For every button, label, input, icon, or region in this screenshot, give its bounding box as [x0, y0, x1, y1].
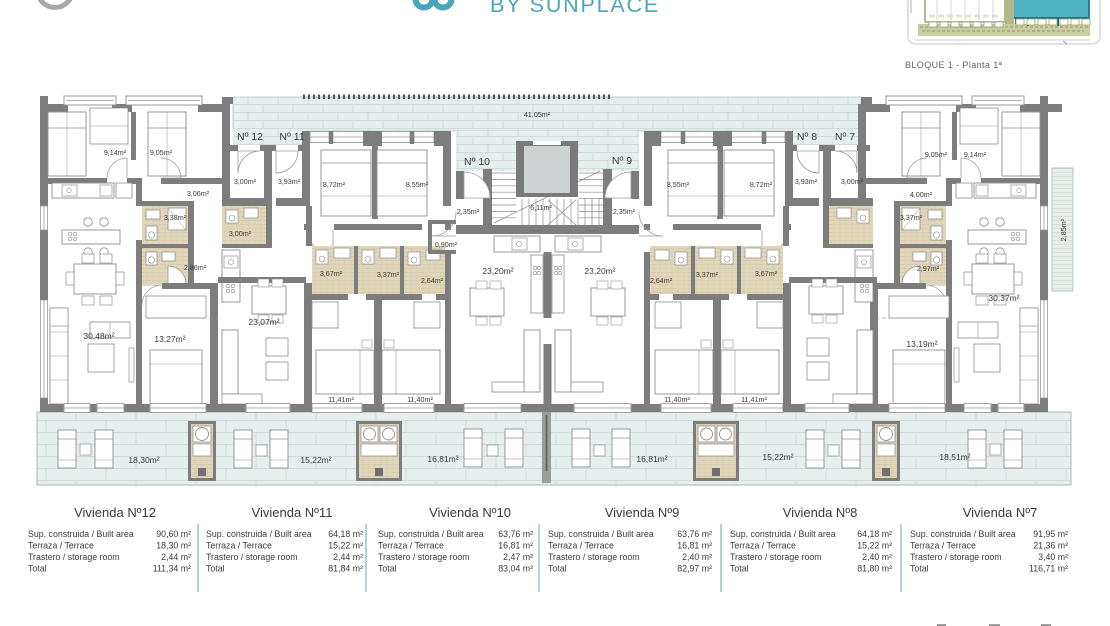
svg-text:23,20m²: 23,20m²	[482, 266, 513, 276]
svg-text:Nº 9: Nº 9	[612, 155, 632, 167]
svg-text:3,37m²: 3,37m²	[377, 270, 400, 279]
svg-text:Total: Total	[910, 564, 929, 574]
svg-text:64,18 m²: 64,18 m²	[328, 529, 363, 539]
svg-text:2,64m²: 2,64m²	[650, 276, 673, 285]
svg-text:Sup. construida / Built area: Sup. construida / Built area	[730, 529, 836, 539]
svg-text:8,72m²: 8,72m²	[323, 180, 346, 189]
svg-text:Total: Total	[730, 564, 749, 574]
svg-text:111,34 m²: 111,34 m²	[153, 564, 191, 574]
svg-text:30,48m²: 30,48m²	[83, 331, 114, 341]
svg-text:3,67m²: 3,67m²	[320, 269, 343, 278]
svg-text:6,11m²: 6,11m²	[530, 203, 552, 212]
svg-text:21,36 m²: 21,36 m²	[1033, 541, 1068, 551]
svg-text:Sup. construida / Built area: Sup. construida / Built area	[28, 529, 134, 539]
svg-text:23,07m²: 23,07m²	[248, 317, 279, 327]
svg-text:63,76 m²: 63,76 m²	[677, 529, 712, 539]
svg-text:8,55m²: 8,55m²	[406, 180, 429, 189]
svg-text:15,22m²: 15,22m²	[300, 455, 331, 465]
svg-text:2,35m²: 2,35m²	[457, 207, 480, 216]
svg-text:2,44 m²: 2,44 m²	[161, 552, 191, 562]
svg-text:Sup. construida / Built area: Sup. construida / Built area	[548, 529, 654, 539]
svg-text:3,00m²: 3,00m²	[234, 177, 257, 186]
svg-text:83,04 m²: 83,04 m²	[498, 564, 533, 574]
svg-text:Trastero / storage room: Trastero / storage room	[910, 552, 1002, 562]
svg-text:3,67m²: 3,67m²	[755, 269, 778, 278]
svg-text:Vivienda Nº12: Vivienda Nº12	[74, 505, 156, 520]
svg-text:4,00m²: 4,00m²	[910, 190, 933, 199]
svg-text:BLOQUE 1 - Planta 1ª: BLOQUE 1 - Planta 1ª	[905, 60, 1003, 70]
svg-text:0,90m²: 0,90m²	[435, 240, 458, 249]
svg-text:Total: Total	[206, 564, 225, 574]
svg-text:Sup. construida / Built area: Sup. construida / Built area	[378, 529, 484, 539]
svg-text:Terraza / Terrace: Terraza / Terrace	[378, 541, 444, 551]
svg-text:116,71 m²: 116,71 m²	[1029, 564, 1068, 574]
svg-text:63,76 m²: 63,76 m²	[498, 529, 533, 539]
svg-text:64,18 m²: 64,18 m²	[857, 529, 892, 539]
svg-text:Total: Total	[378, 564, 397, 574]
svg-text:Vivienda Nº11: Vivienda Nº11	[252, 505, 333, 520]
svg-text:Terraza / Terrace: Terraza / Terrace	[910, 541, 976, 551]
svg-text:Nº 8: Nº 8	[797, 131, 817, 143]
svg-text:. .. ...: . .. ...	[954, 38, 963, 43]
svg-text:2,97m²: 2,97m²	[917, 264, 940, 273]
svg-text:3,40 m²: 3,40 m²	[1038, 552, 1068, 562]
svg-text:81,84 m²: 81,84 m²	[328, 564, 363, 574]
svg-text:8,55m²: 8,55m²	[667, 180, 690, 189]
svg-text:3,00m²: 3,00m²	[229, 229, 252, 238]
svg-text:3,38m²: 3,38m²	[164, 213, 187, 222]
svg-text:Nº 7: Nº 7	[835, 131, 855, 143]
svg-text:Terraza / Terrace: Terraza / Terrace	[548, 541, 614, 551]
svg-text:2,35m²: 2,35m²	[613, 207, 636, 216]
svg-text:30,37m²: 30,37m²	[988, 293, 1019, 303]
svg-text:11,40m²: 11,40m²	[407, 395, 433, 404]
svg-text:13,19m²: 13,19m²	[906, 339, 937, 349]
svg-text:Trastero / storage room: Trastero / storage room	[28, 552, 120, 562]
svg-text:15,22 m²: 15,22 m²	[857, 541, 892, 551]
svg-text:90,60 m²: 90,60 m²	[156, 529, 191, 539]
svg-text:BY SUNPLACE: BY SUNPLACE	[490, 0, 660, 17]
svg-text:3,93m²: 3,93m²	[795, 177, 818, 186]
svg-text:2,40 m²: 2,40 m²	[682, 552, 712, 562]
svg-text:11,40m²: 11,40m²	[664, 395, 690, 404]
svg-text:82,97 m²: 82,97 m²	[677, 564, 712, 574]
svg-text:2,44 m²: 2,44 m²	[333, 552, 363, 562]
svg-text:41,05m²: 41,05m²	[524, 110, 551, 119]
svg-text:Nº 11: Nº 11	[279, 131, 304, 143]
svg-text:8,72m²: 8,72m²	[750, 180, 773, 189]
svg-text:3,37m²: 3,37m²	[696, 270, 719, 279]
svg-text:9,05m²: 9,05m²	[150, 148, 173, 157]
svg-text:18,30m²: 18,30m²	[128, 455, 159, 465]
svg-text:Nº 10: Nº 10	[464, 156, 490, 168]
svg-text:18,30 m²: 18,30 m²	[156, 541, 191, 551]
svg-text:16,81m²: 16,81m²	[427, 454, 458, 464]
svg-text:2,47 m²: 2,47 m²	[503, 552, 533, 562]
svg-text:Total: Total	[548, 564, 567, 574]
svg-text:9,14m²: 9,14m²	[104, 148, 127, 157]
svg-text:Sup. construida / Built area: Sup. construida / Built area	[910, 529, 1016, 539]
svg-text:Terraza / Terrace: Terraza / Terrace	[28, 541, 94, 551]
svg-text:Trastero / storage room: Trastero / storage room	[548, 552, 640, 562]
svg-text:Sup. construida / Built area: Sup. construida / Built area	[206, 529, 312, 539]
svg-text:2,85m²: 2,85m²	[1059, 218, 1068, 241]
svg-text:Trastero / storage room: Trastero / storage room	[378, 552, 470, 562]
svg-text:Trastero / storage room: Trastero / storage room	[730, 552, 822, 562]
svg-text:Vivienda Nº7: Vivienda Nº7	[963, 505, 1038, 520]
svg-text:3,00m²: 3,00m²	[841, 177, 864, 186]
svg-text:18,51m²: 18,51m²	[939, 452, 970, 462]
svg-text:Nº 12: Nº 12	[237, 131, 263, 143]
svg-text:15,22 m²: 15,22 m²	[328, 541, 363, 551]
svg-text:81,80 m²: 81,80 m²	[857, 564, 892, 574]
svg-text:9,14m²: 9,14m²	[964, 150, 987, 159]
svg-text:Terraza / Terrace: Terraza / Terrace	[206, 541, 272, 551]
svg-text:2,64m²: 2,64m²	[421, 276, 444, 285]
svg-text:16,81 m²: 16,81 m²	[677, 541, 712, 551]
svg-text:2,40 m²: 2,40 m²	[862, 552, 892, 562]
svg-text:Total: Total	[28, 564, 47, 574]
svg-text:23,20m²: 23,20m²	[584, 266, 615, 276]
svg-text:3,37m²: 3,37m²	[900, 213, 923, 222]
svg-text:Vivienda Nº8: Vivienda Nº8	[783, 505, 858, 520]
svg-text:15,22m²: 15,22m²	[762, 452, 793, 462]
svg-text:3,93m²: 3,93m²	[278, 177, 301, 186]
svg-text:Vivienda Nº10: Vivienda Nº10	[429, 505, 511, 520]
svg-text:Vivienda Nº9: Vivienda Nº9	[605, 505, 680, 520]
svg-text:3,06m²: 3,06m²	[187, 189, 210, 198]
svg-text:16,81 m²: 16,81 m²	[498, 541, 533, 551]
svg-text:13,27m²: 13,27m²	[154, 334, 185, 344]
svg-text:16,81m²: 16,81m²	[636, 454, 667, 464]
svg-text:91,95 m²: 91,95 m²	[1033, 529, 1068, 539]
svg-text:2,86m²: 2,86m²	[184, 263, 207, 272]
svg-text:11,41m²: 11,41m²	[328, 395, 354, 404]
svg-text:Trastero / storage room: Trastero / storage room	[206, 552, 298, 562]
svg-text:11,41m²: 11,41m²	[741, 395, 767, 404]
svg-text:9,05m²: 9,05m²	[925, 150, 948, 159]
svg-text:Terraza / Terrace: Terraza / Terrace	[730, 541, 796, 551]
